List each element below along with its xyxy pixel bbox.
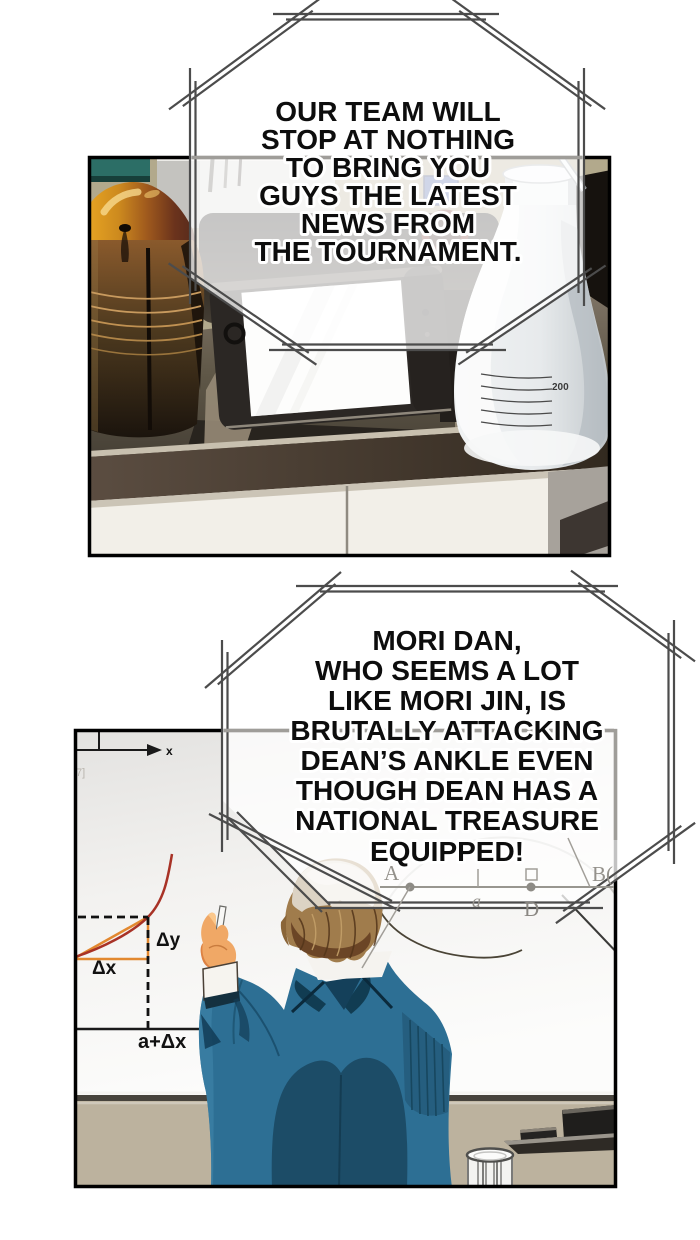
svg-text:B(: B( <box>592 862 613 886</box>
svg-text:BRUTALLY ATTACKING: BRUTALLY ATTACKING <box>290 715 603 746</box>
svg-text:Δy: Δy <box>156 930 181 951</box>
svg-text:MORI DAN,: MORI DAN, <box>372 625 521 656</box>
svg-text:EQUIPPED!: EQUIPPED! <box>370 836 524 867</box>
svg-text:STOP AT NOTHING: STOP AT NOTHING <box>261 124 515 155</box>
svg-text:NEWS FROM: NEWS FROM <box>301 208 475 239</box>
svg-text:GUYS THE LATEST: GUYS THE LATEST <box>259 180 517 211</box>
svg-text:a+Δx: a+Δx <box>138 1031 186 1053</box>
svg-text:LIKE MORI JIN, IS: LIKE MORI JIN, IS <box>328 685 566 716</box>
svg-text:a: a <box>472 891 481 911</box>
svg-text:D: D <box>524 897 539 921</box>
svg-text:Δx: Δx <box>92 958 117 979</box>
svg-text:WHO SEEMS A LOT: WHO SEEMS A LOT <box>315 655 579 686</box>
svg-text:OUR TEAM WILL: OUR TEAM WILL <box>275 96 501 127</box>
svg-text:THOUGH DEAN HAS A: THOUGH DEAN HAS A <box>296 775 598 806</box>
svg-text:THE TOURNAMENT.: THE TOURNAMENT. <box>254 236 521 267</box>
svg-text:7]: 7] <box>76 767 85 779</box>
svg-text:TO BRING YOU: TO BRING YOU <box>286 152 490 183</box>
svg-text:200: 200 <box>552 382 569 393</box>
svg-text:DEAN’S ANKLE EVEN: DEAN’S ANKLE EVEN <box>300 745 593 776</box>
svg-text:NATIONAL TREASURE: NATIONAL TREASURE <box>295 805 599 836</box>
svg-text:x: x <box>166 744 173 758</box>
